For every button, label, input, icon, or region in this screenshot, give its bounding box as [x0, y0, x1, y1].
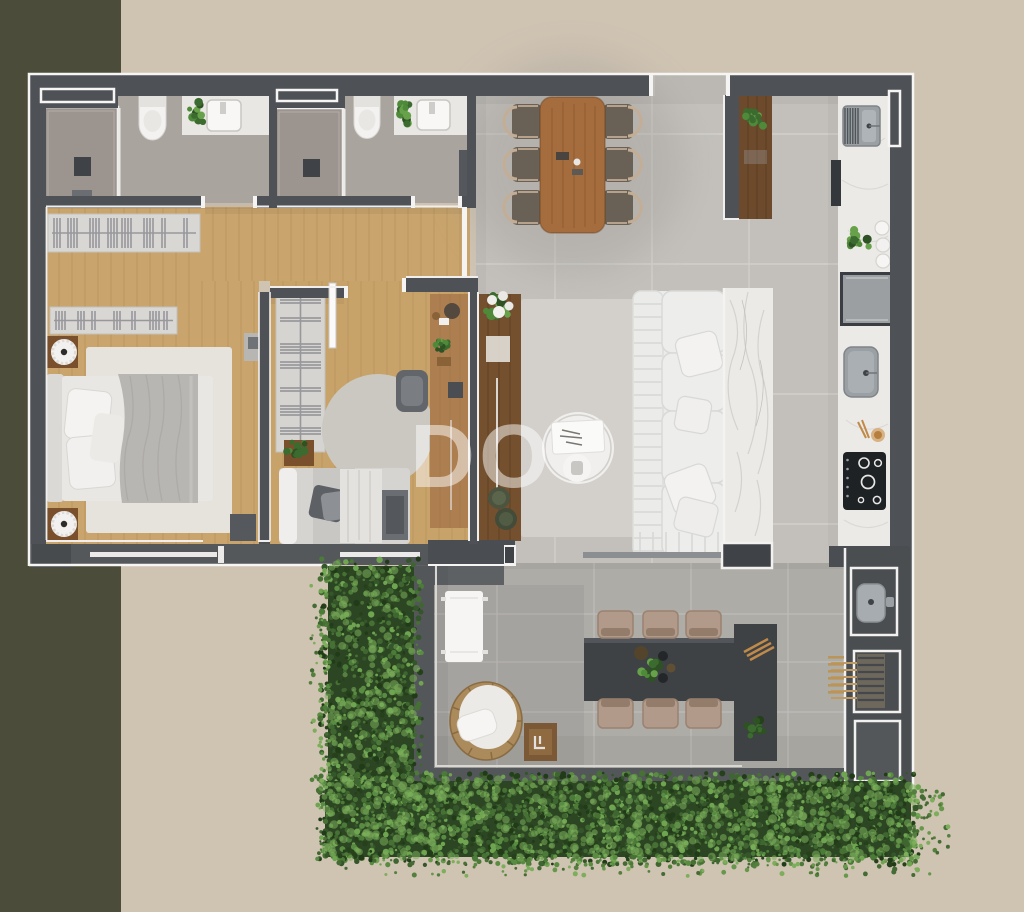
svg-text:DO: DO	[410, 407, 553, 507]
